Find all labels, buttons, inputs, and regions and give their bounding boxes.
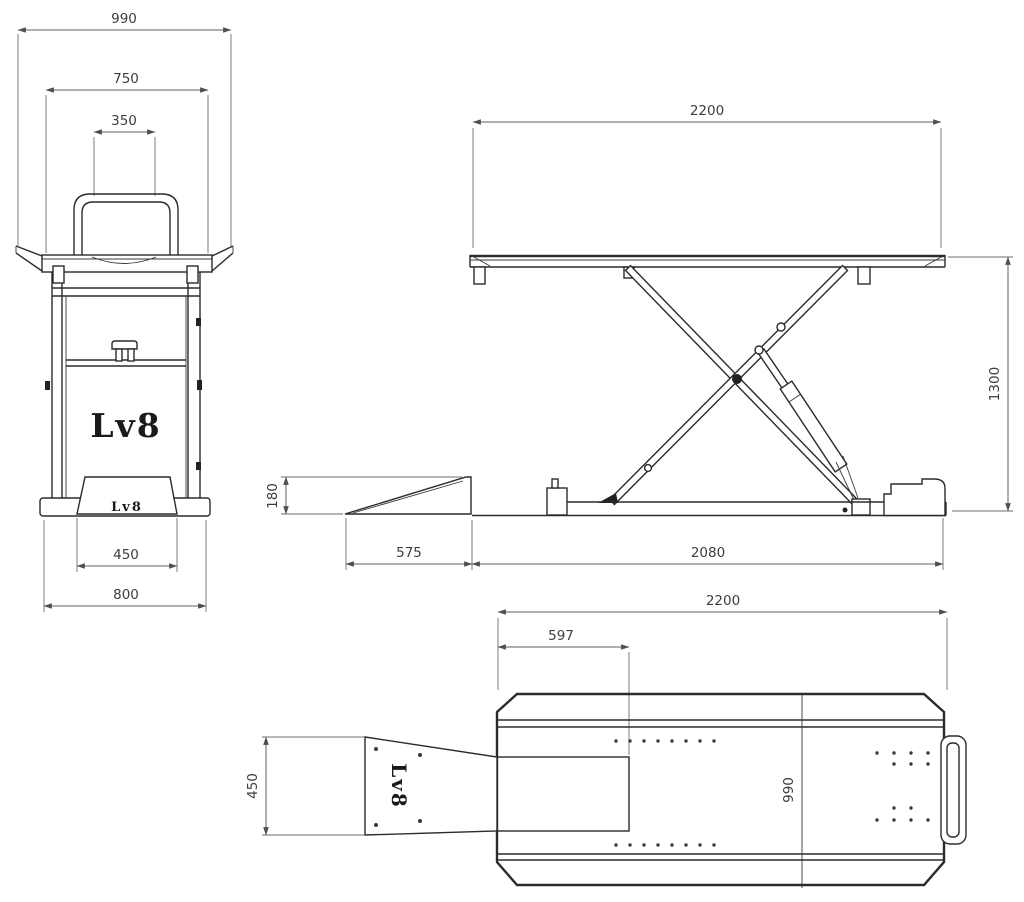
technical-drawing-page: 990 750 350 450 800 xyxy=(0,0,1024,902)
top-view-dimensions: 2200 597 450 990 xyxy=(245,593,947,835)
latch-mark xyxy=(196,318,201,326)
dim-front-overall-width: 990 xyxy=(111,11,137,27)
latch-mark xyxy=(45,381,50,390)
latch-mark xyxy=(196,462,201,470)
dim-side-ramp-height: 180 xyxy=(265,483,281,509)
brand-logo-front-ramp: Lv8 xyxy=(111,500,143,515)
brand-logo-top-ramp: Lv8 xyxy=(387,763,411,809)
pump-housing xyxy=(884,479,945,516)
front-right-pivot-block xyxy=(187,266,198,283)
platform-foot xyxy=(474,267,485,284)
dim-top-platform-length: 2200 xyxy=(706,593,740,609)
scissor-arm-rear xyxy=(626,266,858,505)
dim-side-ramp-length: 575 xyxy=(396,545,422,561)
front-wheel-clamp-handle xyxy=(74,194,178,257)
front-base: Lv8 xyxy=(40,477,210,516)
front-platform xyxy=(16,246,233,272)
front-pedal-knob xyxy=(112,341,137,361)
brand-logo-front: Lv8 xyxy=(90,406,161,445)
side-platform xyxy=(470,255,945,284)
base-front-foot xyxy=(547,488,567,515)
platform-foot xyxy=(858,267,870,284)
dim-top-slot-offset: 597 xyxy=(548,628,574,644)
perforation-dots xyxy=(614,739,929,846)
front-view-dimensions: 990 750 350 450 800 xyxy=(18,11,231,612)
top-ramp: Lv8 xyxy=(365,737,497,835)
top-grab-handle xyxy=(941,736,966,844)
front-left-pivot-block xyxy=(53,266,64,283)
front-view: 990 750 350 450 800 xyxy=(16,11,233,612)
dim-top-ramp-width: 450 xyxy=(245,773,261,799)
dim-front-handle-width: 350 xyxy=(111,113,137,129)
dim-front-ramp-width: 450 xyxy=(113,547,139,563)
wheel-slot xyxy=(497,757,629,831)
top-view: 2200 597 450 990 xyxy=(245,593,966,888)
dim-front-platform-width: 750 xyxy=(113,71,139,87)
dim-side-lift-height: 1300 xyxy=(987,367,1003,401)
dim-front-base-width: 800 xyxy=(113,587,139,603)
top-platform xyxy=(497,694,966,888)
lift-technical-drawing: 990 750 350 450 800 xyxy=(0,0,1024,902)
front-column-frame xyxy=(45,266,202,500)
side-base xyxy=(472,479,946,516)
side-ramp xyxy=(345,477,471,514)
dim-top-platform-width: 990 xyxy=(781,777,797,803)
side-view: 2200 1300 180 575 2080 xyxy=(265,103,1013,570)
dim-side-base-length: 2080 xyxy=(691,545,725,561)
scissor-center-pivot xyxy=(732,374,742,384)
scissor-mechanism xyxy=(598,266,870,516)
dim-side-platform-length: 2200 xyxy=(690,103,724,119)
latch-mark xyxy=(197,380,202,390)
